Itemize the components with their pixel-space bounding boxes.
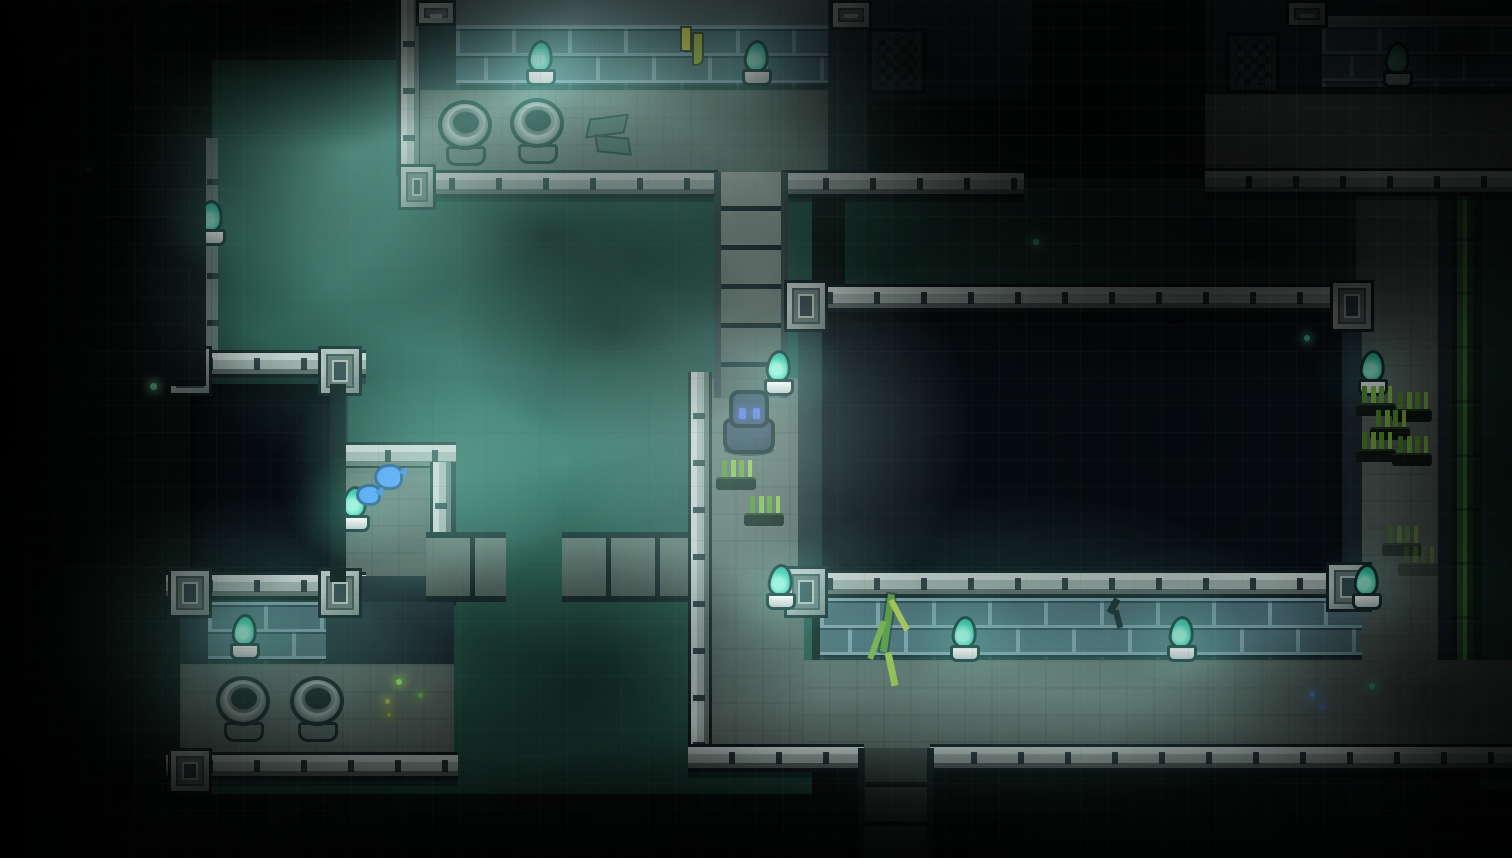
glow-particle	[86, 167, 90, 171]
wall-grate-right	[1226, 32, 1280, 94]
grass-tuft-right-5	[1392, 436, 1432, 466]
wall-lamp-top-right-room	[1381, 42, 1415, 88]
lamp-base	[1383, 71, 1413, 88]
lamp-base	[950, 645, 980, 662]
pillar-hall-ne	[1330, 280, 1374, 332]
wall-lamp-bottom-room-left	[948, 616, 982, 662]
pillar-top-room-ne	[830, 0, 872, 30]
lamp-base	[230, 643, 260, 660]
bottomleft-brick-wall	[208, 602, 326, 666]
great-hall-north-ledge	[786, 284, 1374, 316]
pillar-top-room-sw	[398, 164, 436, 210]
grass-tuft-corridor-1	[716, 460, 756, 490]
lamp-base	[526, 69, 556, 86]
cauldron-opening	[305, 688, 331, 709]
wall-lamp-corridor-south	[764, 564, 798, 610]
cauldron-bottomleft-1[interactable]	[214, 674, 274, 742]
wall-lamp-bottomleft-room	[228, 614, 262, 660]
bottom-south-ledge-east	[930, 744, 1512, 778]
grass-tuft-right-4	[1356, 432, 1396, 462]
wall-lamp-top-room-right	[740, 40, 774, 86]
lamp-base	[766, 593, 796, 610]
top-room-south-ledge-right	[782, 170, 1024, 202]
left-dark-wall-cover	[140, 136, 206, 386]
pillar-bottomleft-sw	[168, 748, 212, 794]
wall-lamp-right-corridor-south	[1350, 564, 1384, 610]
glow-particle	[62, 56, 67, 61]
wall-lamp-bottom-room-right	[1165, 616, 1199, 662]
character-eye-left	[739, 408, 746, 419]
plank-bridge-west	[426, 532, 506, 602]
cauldron-bottomleft-2[interactable]	[288, 674, 348, 742]
wall-lamp-top-room-left	[524, 40, 558, 86]
rubble-top-room	[582, 110, 640, 166]
lamp-base	[742, 69, 772, 86]
top-room-wall-top	[456, 0, 830, 28]
grass-tuft-corridor-2	[744, 496, 784, 526]
cauldron-opening	[525, 110, 551, 131]
vine-branch	[885, 652, 899, 687]
south-bridge	[858, 748, 934, 858]
cauldron-top-room-2[interactable]	[508, 96, 568, 164]
pillar-hall-nw	[784, 280, 828, 332]
hanging-vine	[866, 594, 922, 690]
lamp-base	[1167, 645, 1197, 662]
cauldron-top-room-1[interactable]	[436, 98, 496, 166]
grass-tuft-right-dim-2	[1398, 546, 1438, 576]
player-hooded-figure[interactable]	[720, 390, 778, 456]
lamp-base	[1352, 593, 1382, 610]
central-corridor-west-rim	[688, 372, 712, 750]
wall-crack	[1100, 596, 1132, 634]
bottom-south-ledge-west	[688, 744, 864, 778]
top-right-south-ledge	[1205, 168, 1512, 200]
blue-fish-item-1[interactable]	[374, 464, 408, 484]
great-hall-west-wall	[798, 310, 822, 578]
cauldron-opening	[453, 112, 479, 133]
pit-edge-cover	[330, 384, 346, 582]
pillar-top-room-nw	[416, 0, 456, 26]
great-hall-pit	[808, 302, 1348, 578]
game-viewport[interactable]	[0, 0, 1512, 858]
pillar-bottomleft-nw	[168, 568, 212, 618]
left-pit	[190, 384, 340, 578]
character-hood	[729, 390, 769, 428]
pillar-top-right-room	[1286, 0, 1328, 28]
top-room-south-ledge-left	[408, 170, 718, 202]
cauldron-opening	[231, 688, 257, 709]
top-right-brick-wall	[1322, 24, 1512, 94]
top-right-room-floor	[1205, 94, 1512, 174]
blue-fish-item-2[interactable]	[356, 484, 384, 500]
wall-grate-center	[868, 28, 926, 94]
character-eye-right	[753, 408, 760, 419]
hanging-plant-yellow	[680, 26, 706, 68]
